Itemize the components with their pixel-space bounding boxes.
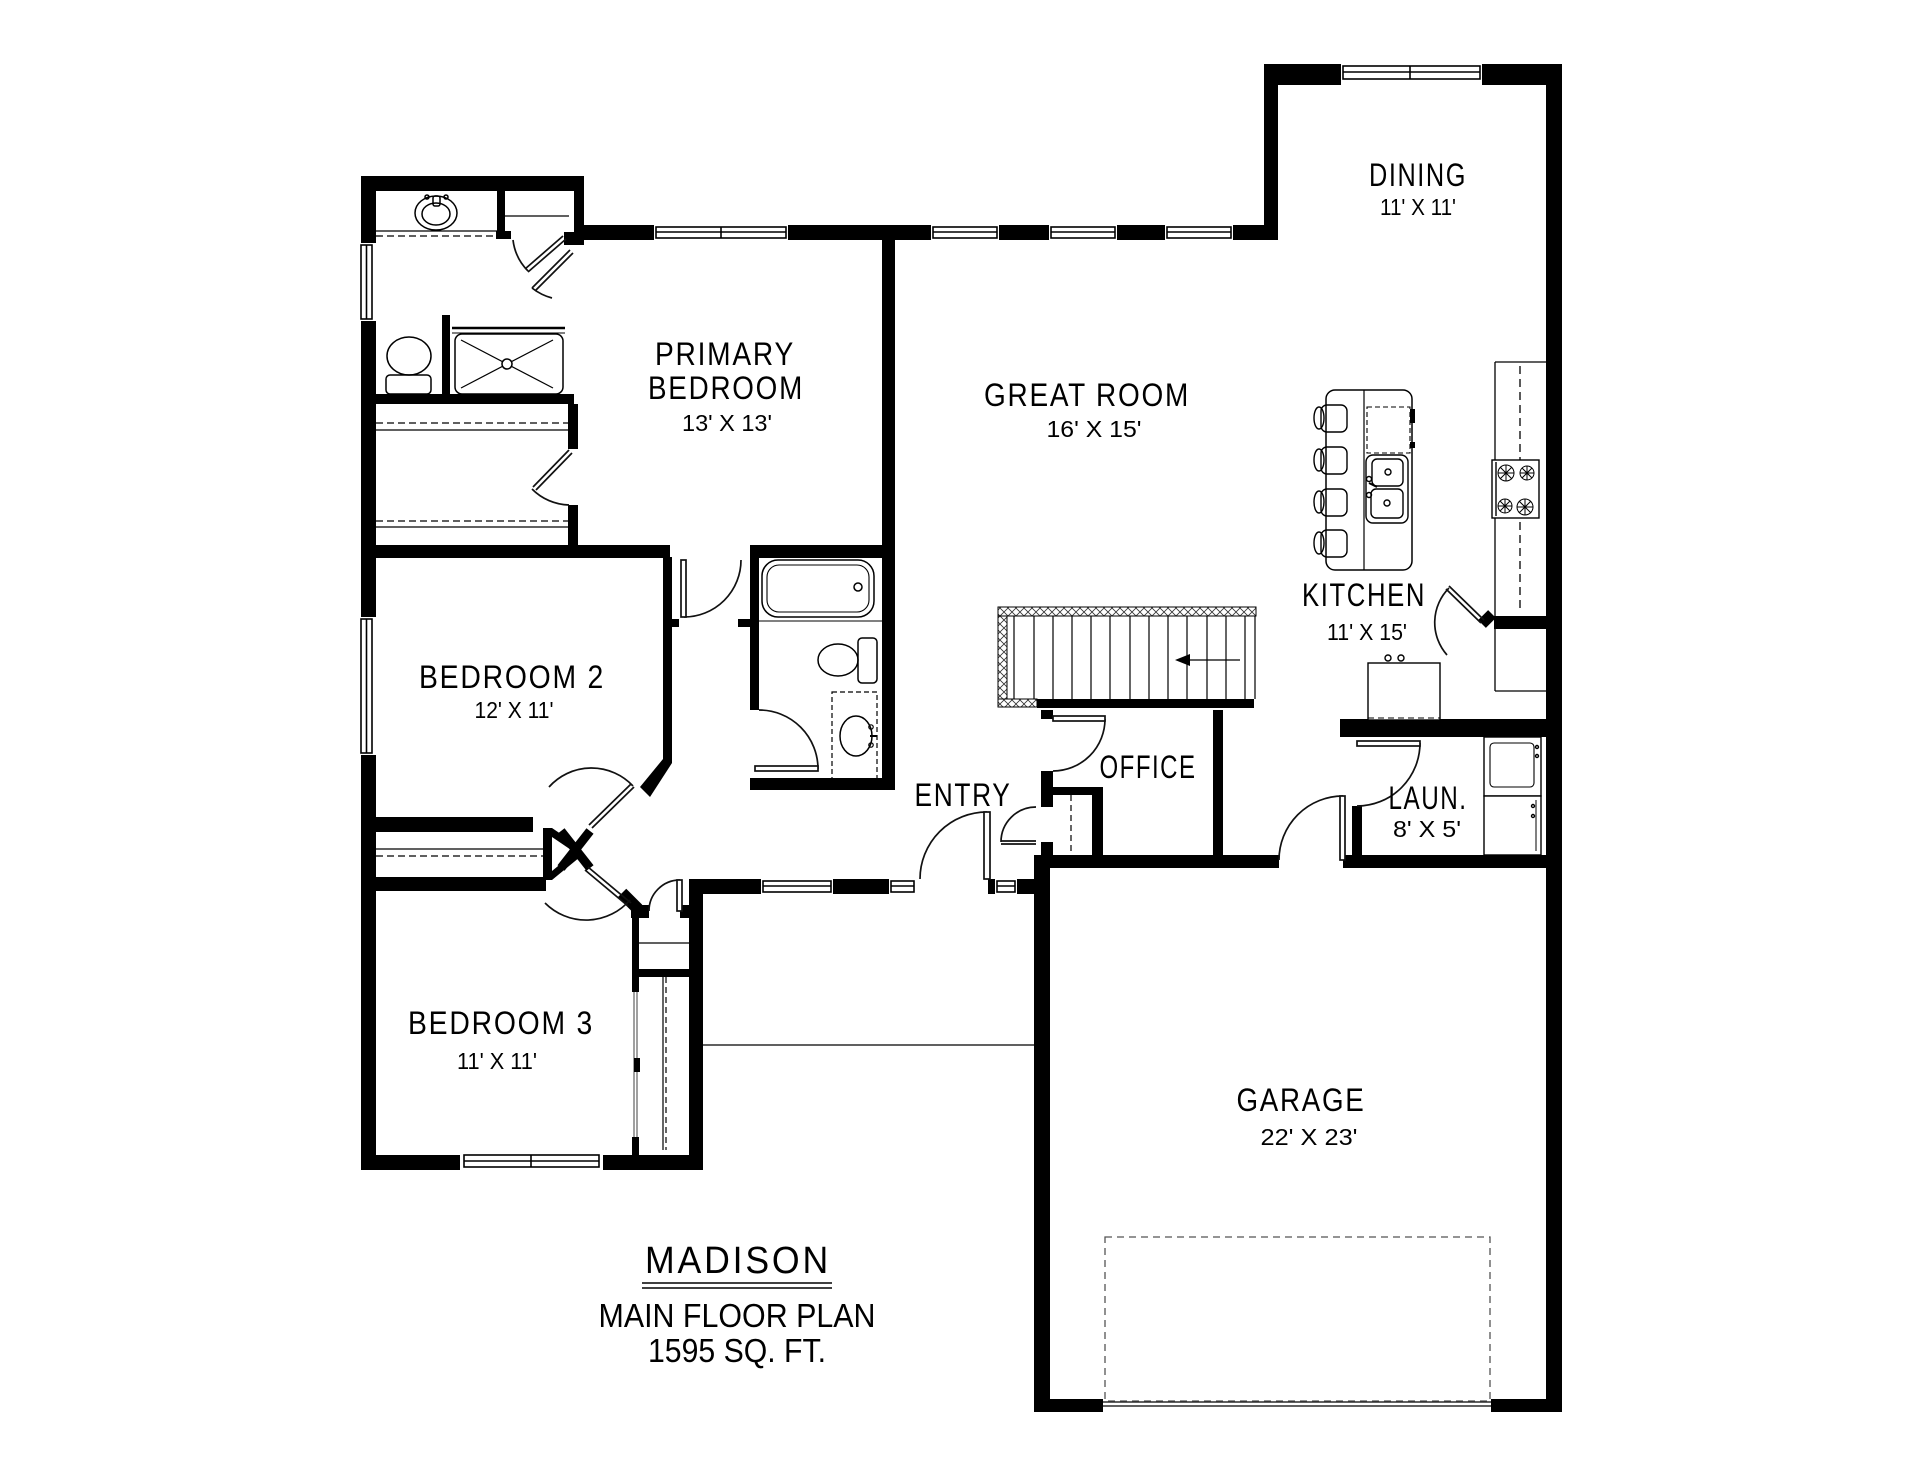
svg-text:16' X 15': 16' X 15' [1047, 416, 1142, 442]
svg-text:12' X 11': 12' X 11' [475, 697, 554, 723]
svg-text:11' X 15': 11' X 15' [1327, 619, 1407, 645]
svg-text:GARAGE: GARAGE [1237, 1082, 1366, 1118]
svg-text:ENTRY: ENTRY [915, 777, 1012, 813]
svg-text:BEDROOM 3: BEDROOM 3 [408, 1005, 594, 1041]
svg-text:MADISON: MADISON [645, 1240, 831, 1282]
svg-text:KITCHEN: KITCHEN [1302, 577, 1426, 613]
svg-text:22' X 23': 22' X 23' [1261, 1124, 1358, 1150]
svg-text:11' X 11': 11' X 11' [457, 1048, 537, 1074]
svg-text:OFFICE: OFFICE [1100, 749, 1197, 785]
svg-text:BEDROOM 2: BEDROOM 2 [419, 659, 605, 695]
svg-text:1595 SQ. FT.: 1595 SQ. FT. [648, 1332, 826, 1369]
svg-text:LAUN.: LAUN. [1389, 780, 1468, 816]
svg-text:13' X 13': 13' X 13' [682, 410, 772, 436]
svg-text:PRIMARY: PRIMARY [655, 336, 795, 372]
svg-text:8' X 5': 8' X 5' [1393, 816, 1461, 842]
svg-text:MAIN FLOOR PLAN: MAIN FLOOR PLAN [599, 1297, 876, 1334]
svg-text:11' X 11': 11' X 11' [1380, 194, 1456, 220]
svg-text:DINING: DINING [1369, 157, 1467, 193]
svg-text:GREAT ROOM: GREAT ROOM [984, 377, 1190, 413]
svg-text:BEDROOM: BEDROOM [648, 370, 804, 406]
